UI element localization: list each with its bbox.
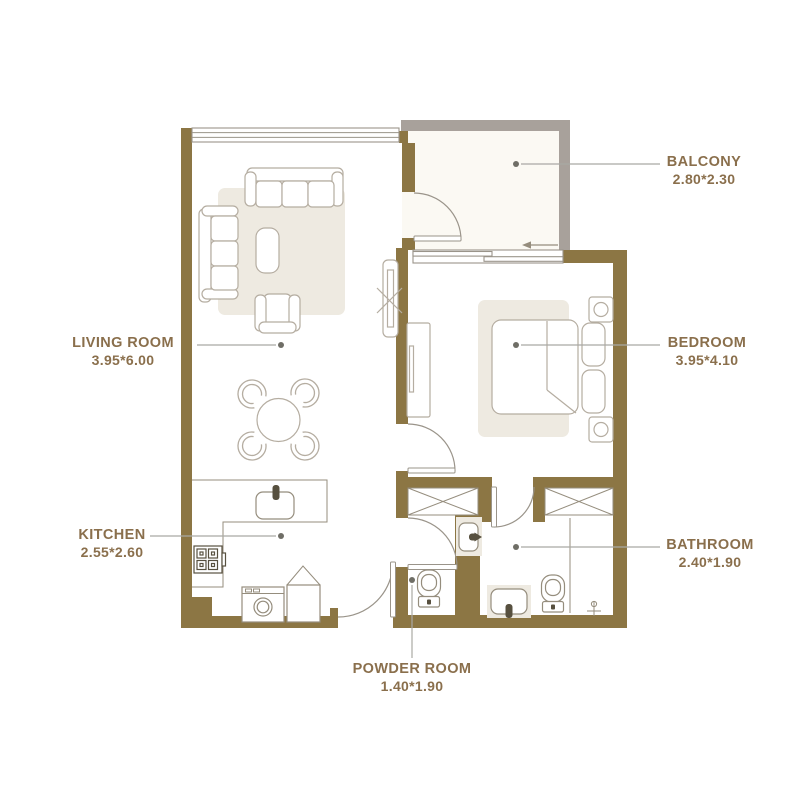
room-dims: 2.80*2.30	[664, 171, 744, 188]
room-label-kitchen: KITCHEN 2.55*2.60	[32, 526, 192, 561]
room-dims: 3.95*4.10	[666, 352, 748, 369]
washbasin-icon	[456, 517, 482, 556]
room-label-bedroom: BEDROOM 3.95*4.10	[666, 334, 748, 369]
armchair-icon	[255, 294, 300, 333]
balcony-area	[401, 120, 570, 250]
kitchen-cabinet-icon	[287, 566, 320, 622]
hall-closet-icon	[408, 488, 478, 515]
kitchen-sink-icon	[256, 485, 294, 519]
floor-plan: LIVING ROOM 3.95*6.00 KITCHEN 2.55*2.60 …	[0, 0, 800, 800]
toilet-icon	[542, 575, 565, 612]
coffee-table-icon	[256, 228, 279, 273]
window-icon	[192, 128, 399, 142]
tv-icon	[377, 260, 402, 337]
shower-mixer-icon	[570, 518, 601, 616]
washing-machine-icon	[242, 587, 284, 622]
room-label-bathroom: BATHROOM 2.40*1.90	[664, 536, 756, 571]
room-name: BALCONY	[664, 153, 744, 171]
toilet-icon	[418, 570, 441, 607]
room-name: BEDROOM	[666, 334, 748, 352]
room-label-balcony: BALCONY 2.80*2.30	[664, 153, 744, 188]
room-dims: 3.95*6.00	[40, 352, 206, 369]
room-dims: 2.40*1.90	[664, 554, 756, 571]
room-name: BATHROOM	[664, 536, 756, 554]
pillow-icon	[582, 370, 605, 413]
room-dims: 2.55*2.60	[32, 544, 192, 561]
room-name: KITCHEN	[32, 526, 192, 544]
dining-table-icon	[257, 399, 300, 442]
powder-room-door-icon	[408, 518, 457, 570]
room-label-living-room: LIVING ROOM 3.95*6.00	[40, 334, 206, 369]
bathroom-door-icon	[492, 487, 535, 527]
stove-icon	[194, 546, 226, 573]
bed-icon	[492, 320, 605, 414]
loveseat-icon	[199, 206, 238, 302]
room-name: POWDER ROOM	[352, 660, 472, 678]
room-label-powder-room: POWDER ROOM 1.40*1.90	[352, 660, 472, 695]
room-name: LIVING ROOM	[40, 334, 206, 352]
bedroom-closet-icon	[545, 488, 613, 515]
wardrobe-icon	[407, 323, 430, 417]
vanity-icon	[487, 585, 531, 618]
entry-door-icon	[338, 562, 396, 617]
room-dims: 1.40*1.90	[352, 678, 472, 695]
sofa-icon	[245, 168, 343, 207]
bedroom-door-icon	[408, 424, 455, 473]
